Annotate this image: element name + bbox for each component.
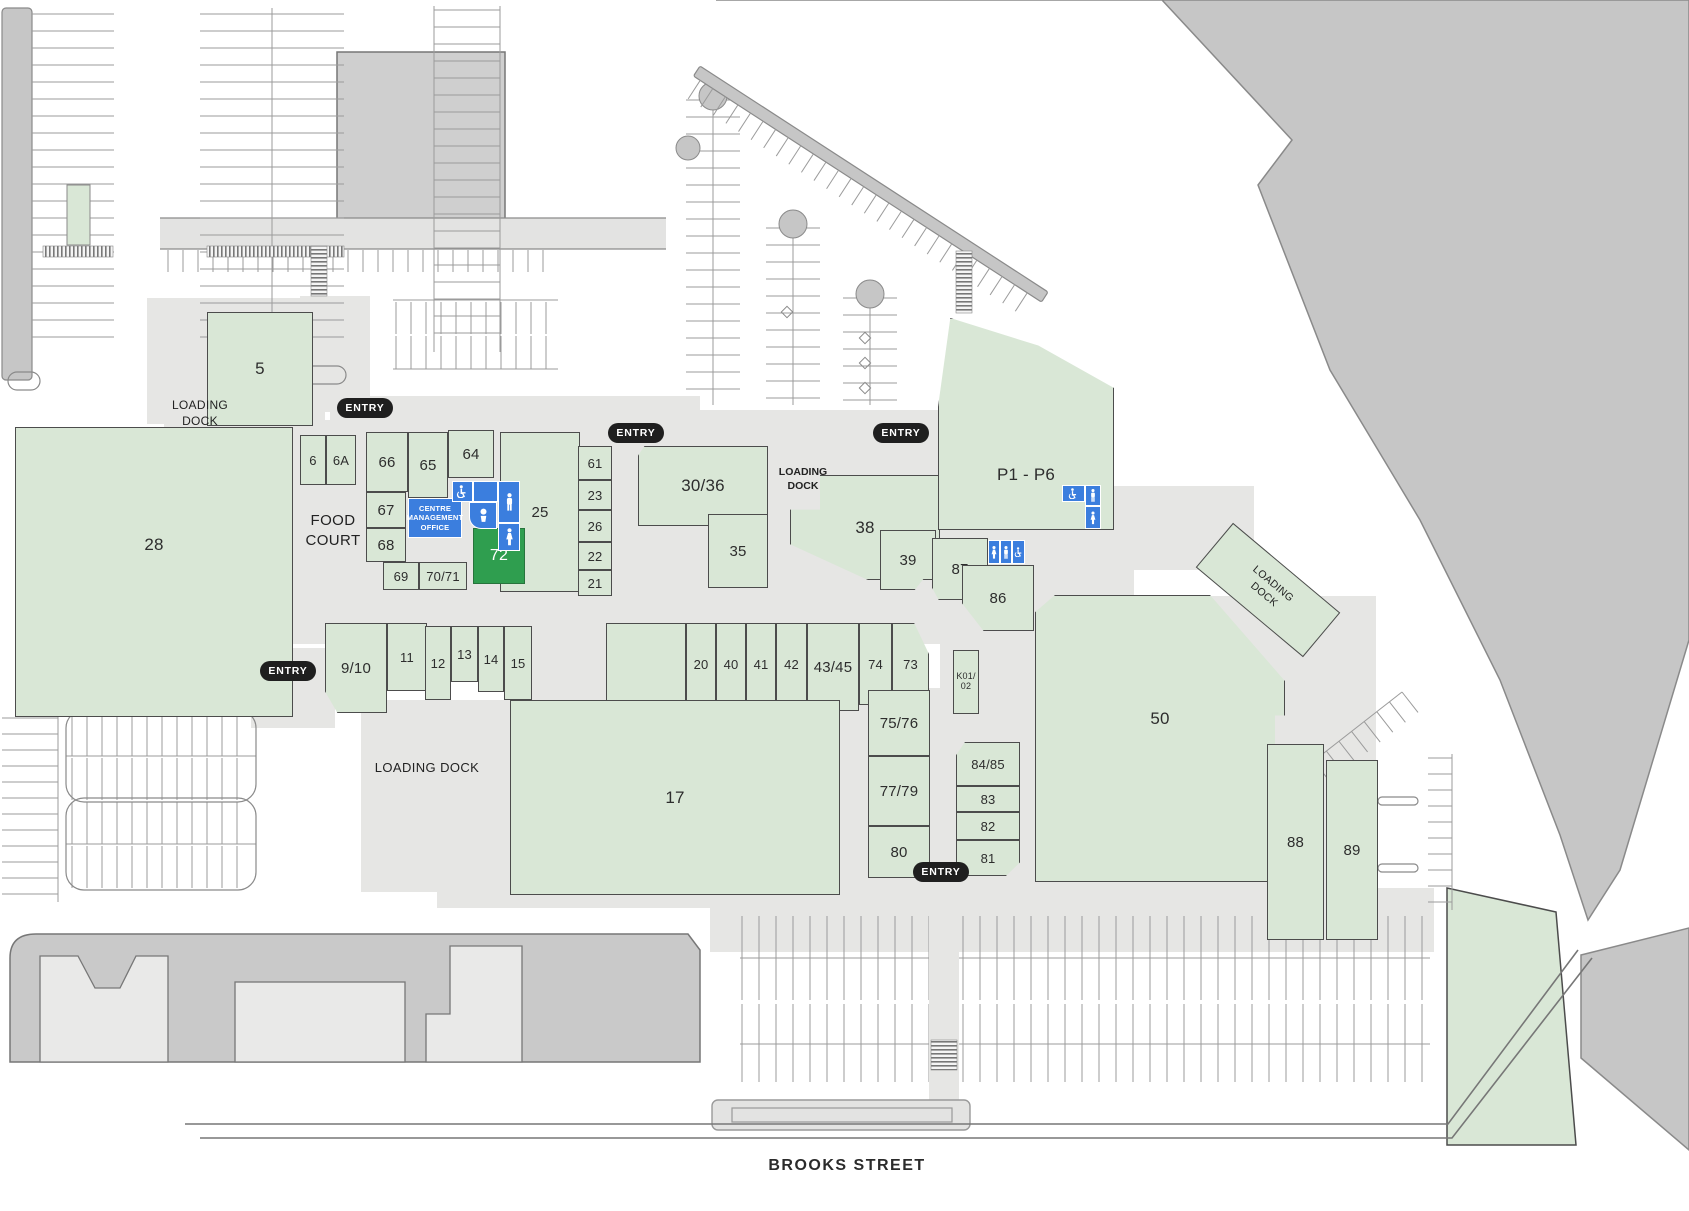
wheelchair-icon	[1068, 488, 1079, 499]
female-icon	[1089, 510, 1097, 526]
store-26-label: 26	[588, 519, 603, 534]
loading-dock-30-36-label: LOADING DOCK	[768, 466, 838, 493]
parking-green-island	[67, 185, 90, 245]
store-23-label: 23	[588, 488, 603, 503]
store-88[interactable]: 88	[1267, 744, 1324, 940]
store-17[interactable]: 17	[510, 700, 840, 895]
store-86-label: 86	[989, 590, 1006, 607]
store-6[interactable]: 6	[300, 435, 326, 485]
store-75-76-label: 75/76	[880, 715, 919, 732]
store-20[interactable]: 20	[686, 623, 716, 705]
store-43-45[interactable]: 43/45	[807, 623, 859, 711]
wheelchair-icon	[456, 485, 469, 498]
store-73-label: 73	[903, 657, 918, 672]
store-70-71-label: 70/71	[426, 569, 460, 584]
store-38-label: 38	[855, 518, 874, 538]
store-82[interactable]: 82	[956, 812, 1020, 840]
store-82-label: 82	[981, 819, 996, 834]
store-77-79-label: 77/79	[880, 783, 919, 800]
entry-badge-north-west[interactable]: ENTRY	[337, 398, 393, 418]
store-11[interactable]: 11	[387, 623, 427, 691]
store-41[interactable]: 41	[746, 623, 776, 705]
kiosk-k01-02-label: K01/02	[956, 672, 975, 692]
store-12[interactable]: 12	[425, 626, 451, 700]
male-icon	[1089, 488, 1097, 503]
entry-badge-west[interactable]: ENTRY	[260, 661, 316, 681]
store-83-label: 83	[981, 792, 996, 807]
female-icon	[990, 545, 998, 560]
amenities-box	[473, 481, 498, 502]
store-65-label: 65	[419, 457, 436, 474]
store-68-label: 68	[377, 537, 394, 554]
store-28[interactable]: 28	[15, 427, 293, 717]
centre-management-office-label: CENTRE MANAGEMENT OFFICE	[407, 504, 464, 532]
store-p1-p6-label: P1 - P6	[997, 465, 1055, 485]
store-88-label: 88	[1287, 834, 1304, 851]
landscape-green-area	[1447, 888, 1576, 1145]
store-22[interactable]: 22	[578, 542, 612, 570]
store-89[interactable]: 89	[1326, 760, 1378, 940]
store-42-label: 42	[784, 657, 799, 672]
food-court-label: FOOD COURT	[293, 511, 373, 550]
store-30-36-label: 30/36	[681, 476, 725, 496]
female-toilet-box-p1	[1085, 506, 1101, 529]
store-75-76[interactable]: 75/76	[868, 690, 930, 756]
store-66[interactable]: 66	[366, 432, 408, 492]
store-61[interactable]: 61	[578, 446, 612, 480]
store-77-79[interactable]: 77/79	[868, 756, 930, 826]
store-28-label: 28	[144, 535, 163, 555]
parents-room-box	[469, 502, 497, 529]
entry-badge-south[interactable]: ENTRY	[913, 862, 969, 882]
store-13[interactable]: 13	[451, 626, 478, 682]
kiosk-k01-02[interactable]: K01/02	[953, 650, 979, 714]
store-9-10-label: 9/10	[341, 660, 371, 677]
accessible-toilet-box-87	[1012, 540, 1025, 564]
store-84-85-label: 84/85	[971, 757, 1005, 772]
store-64[interactable]: 64	[448, 430, 494, 478]
accessible-toilet-box	[452, 481, 473, 502]
store-84-85[interactable]: 84/85	[956, 742, 1020, 786]
store-15-label: 15	[511, 656, 526, 671]
entry-badge-label: ENTRY	[268, 665, 307, 677]
store-15[interactable]: 15	[504, 626, 532, 700]
store-26[interactable]: 26	[578, 510, 612, 542]
store-40-label: 40	[724, 657, 739, 672]
entry-badge-north-east[interactable]: ENTRY	[873, 423, 929, 443]
male-toilet-box	[498, 481, 520, 523]
store-9-10[interactable]: 9/10	[325, 623, 387, 713]
store-83[interactable]: 83	[956, 786, 1020, 812]
loading-dock-central-label: LOADING DOCK	[327, 760, 527, 777]
store-17-label: 17	[665, 788, 684, 808]
store-89-label: 89	[1343, 842, 1360, 859]
store-66-label: 66	[378, 454, 395, 471]
female-toilet-box-87	[988, 540, 1000, 564]
store-5-label: 5	[255, 359, 265, 379]
entry-badge-label: ENTRY	[881, 427, 920, 439]
store-69[interactable]: 69	[383, 562, 419, 590]
store-50-label: 50	[1150, 709, 1169, 729]
male-icon	[1002, 545, 1010, 560]
accessible-toilet-box-p1	[1062, 485, 1085, 502]
store-23[interactable]: 23	[578, 480, 612, 510]
store-69-label: 69	[394, 569, 409, 584]
store-64-label: 64	[462, 446, 479, 463]
store-25-label: 25	[531, 504, 548, 521]
store-74-label: 74	[868, 657, 883, 672]
store-40[interactable]: 40	[716, 623, 746, 705]
entry-badge-label: ENTRY	[345, 402, 384, 414]
neighbouring-block	[10, 934, 700, 1062]
store-21-label: 21	[588, 576, 603, 591]
entry-badge-label: ENTRY	[921, 866, 960, 878]
wheelchair-icon	[1014, 547, 1024, 557]
store-21[interactable]: 21	[578, 570, 612, 596]
entry-badge-north-centre[interactable]: ENTRY	[608, 423, 664, 443]
store-42[interactable]: 42	[776, 623, 807, 705]
store-39-label: 39	[899, 552, 916, 569]
store-43-45-label: 43/45	[814, 659, 853, 676]
store-67-label: 67	[377, 502, 394, 519]
store-14-label: 14	[484, 652, 499, 667]
baby-icon	[477, 508, 490, 523]
female-icon	[504, 528, 515, 546]
store-80-label: 80	[890, 844, 907, 861]
store-65[interactable]: 65	[408, 432, 448, 498]
store-6-label: 6	[309, 453, 316, 468]
store-70-71[interactable]: 70/71	[419, 562, 467, 590]
store-11-label: 11	[400, 650, 414, 665]
store-6a-label: 6A	[333, 453, 349, 468]
centre-management-office[interactable]: CENTRE MANAGEMENT OFFICE	[408, 498, 462, 538]
male-toilet-box-87	[1000, 540, 1012, 564]
store-6a[interactable]: 6A	[326, 435, 356, 485]
street-name: BROOKS STREET	[697, 1156, 997, 1177]
store-22-label: 22	[588, 549, 603, 564]
store-81-label: 81	[981, 851, 996, 866]
shopping-centre-map: 5 6 6A 28 66 65 25 64 67 68 69 70/71 72 …	[0, 0, 1689, 1211]
store-14[interactable]: 14	[478, 626, 504, 692]
entry-badge-label: ENTRY	[616, 427, 655, 439]
store-12-label: 12	[431, 656, 446, 671]
store-41-label: 41	[754, 657, 769, 672]
female-toilet-box	[498, 523, 520, 551]
male-toilet-box-p1	[1085, 485, 1101, 506]
male-icon	[504, 492, 515, 512]
store-row-unlabelled	[606, 623, 686, 705]
store-13-label: 13	[457, 647, 472, 662]
store-35-label: 35	[729, 543, 746, 560]
store-35[interactable]: 35	[708, 514, 768, 588]
loading-dock-northwest-label: LOADING DOCK	[155, 398, 245, 429]
store-61-label: 61	[588, 456, 603, 471]
store-20-label: 20	[694, 657, 709, 672]
